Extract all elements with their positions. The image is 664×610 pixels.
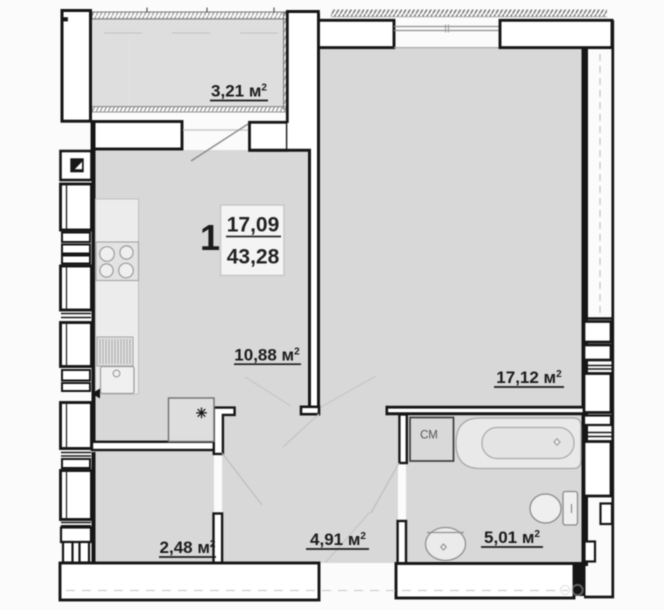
svg-text:17,12 м2: 17,12 м2 [496, 368, 562, 387]
svg-text:5,01 м2: 5,01 м2 [484, 528, 540, 547]
svg-text:4,91 м2: 4,91 м2 [310, 530, 366, 549]
svg-text:43,28: 43,28 [227, 246, 280, 269]
svg-text:1: 1 [200, 217, 220, 258]
svg-text:2,48 м2: 2,48 м2 [160, 538, 216, 557]
svg-text:3,21 м2: 3,21 м2 [211, 82, 267, 101]
svg-text:СМ: СМ [420, 430, 438, 442]
svg-text:17,09: 17,09 [227, 214, 280, 237]
svg-text:✳: ✳ [196, 405, 208, 421]
svg-text:10,88 м2: 10,88 м2 [234, 346, 300, 365]
